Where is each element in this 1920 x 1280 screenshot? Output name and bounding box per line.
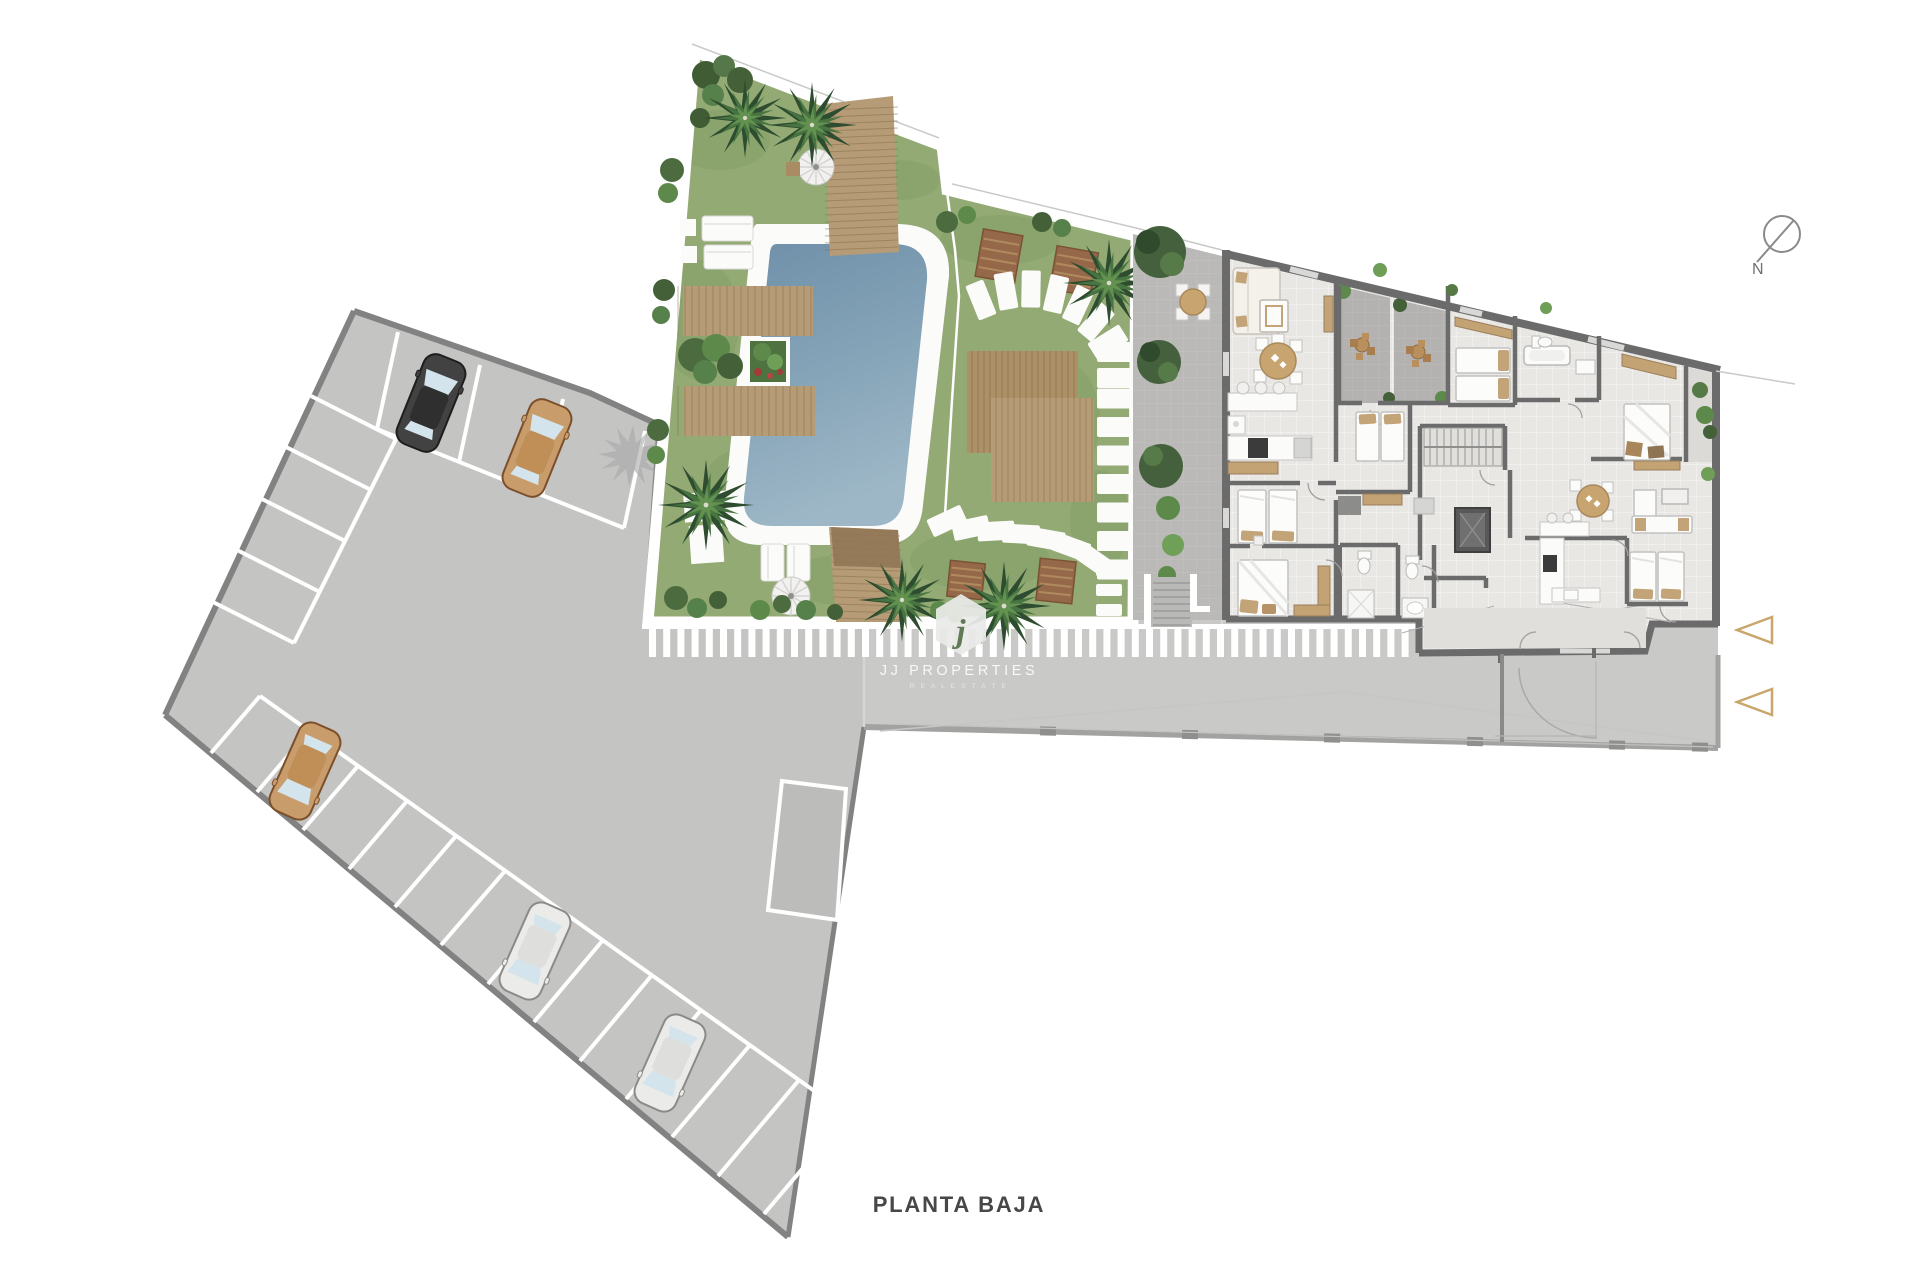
svg-text:R E A L E S T A T E: R E A L E S T A T E — [910, 683, 1008, 690]
svg-text:PLANTA BAJA: PLANTA BAJA — [873, 1192, 1046, 1217]
svg-text:JJ PROPERTIES: JJ PROPERTIES — [880, 663, 1039, 679]
svg-text:N: N — [1752, 261, 1764, 278]
